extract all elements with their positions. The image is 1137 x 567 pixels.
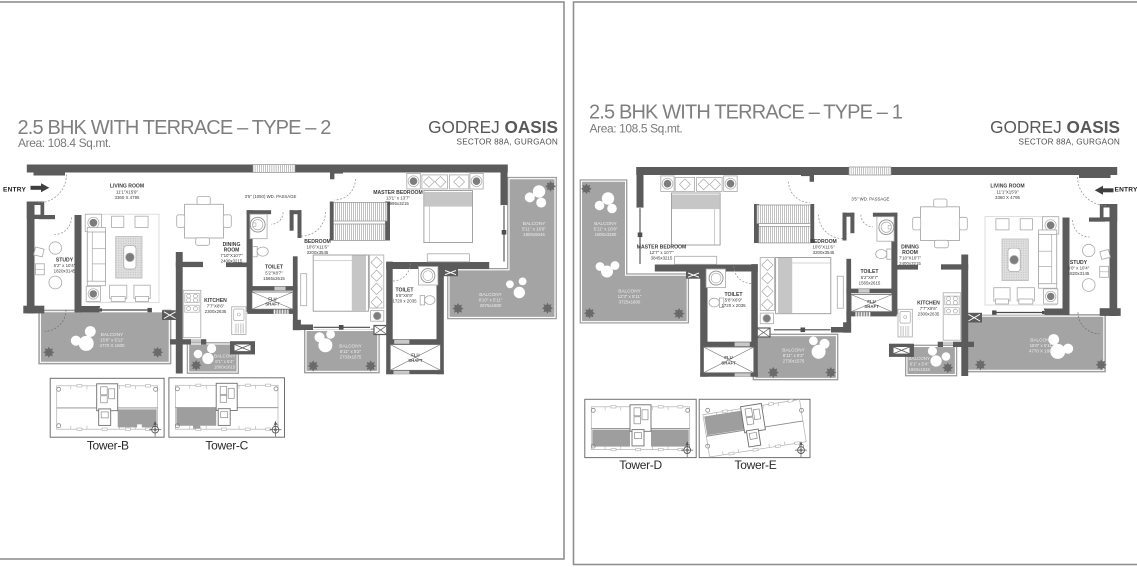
svg-text:3360 X 4795: 3360 X 4795 <box>115 195 140 200</box>
svg-text:10'6"X11'6": 10'6"X11'6" <box>306 245 328 250</box>
svg-text:1720 x 2035: 1720 x 2035 <box>392 299 417 304</box>
svg-text:11'1"X15'9": 11'1"X15'9" <box>996 190 1018 195</box>
svg-text:3'5" WD. PASSAGE: 3'5" WD. PASSAGE <box>851 196 889 201</box>
svg-text:SECTOR 88A, GURGAON: SECTOR 88A, GURGAON <box>1019 137 1120 146</box>
svg-text:SHAFT: SHAFT <box>408 358 423 363</box>
svg-text:7'10"X10'7": 7'10"X10'7" <box>899 256 922 261</box>
svg-text:Tower-D: Tower-D <box>619 458 662 472</box>
svg-text:3845x3215: 3845x3215 <box>651 256 673 261</box>
svg-text:15'8" x 5'11": 15'8" x 5'11" <box>100 338 124 343</box>
svg-text:1820x3145: 1820x3145 <box>54 269 76 274</box>
svg-text:SHAFT: SHAFT <box>721 360 736 365</box>
svg-text:Tower-C: Tower-C <box>205 439 248 453</box>
svg-text:3360 X 4795: 3360 X 4795 <box>995 195 1020 200</box>
svg-text:4770 X 1800: 4770 X 1800 <box>100 343 125 348</box>
svg-text:SECTOR 88A, GURGAON: SECTOR 88A, GURGAON <box>457 137 558 146</box>
svg-text:3'5" (1050) WD. PASSAGE: 3'5" (1050) WD. PASSAGE <box>245 194 297 199</box>
svg-text:12'7" x 10'7": 12'7" x 10'7" <box>649 250 674 255</box>
svg-text:12'3" x 5'11": 12'3" x 5'11" <box>618 294 642 299</box>
svg-text:BALCONY: BALCONY <box>618 288 641 293</box>
svg-text:1720 x 2035: 1720 x 2035 <box>721 303 746 308</box>
svg-text:Area: 108.5 Sq.mt.: Area: 108.5 Sq.mt. <box>590 122 683 136</box>
svg-text:FLU: FLU <box>724 355 732 360</box>
svg-text:BALCONY: BALCONY <box>101 332 124 337</box>
svg-text:ENTRY: ENTRY <box>3 186 27 193</box>
svg-text:BALCONY: BALCONY <box>594 221 617 226</box>
svg-text:1565x2615: 1565x2615 <box>859 280 881 285</box>
svg-text:GODREJ OASIS: GODREJ OASIS <box>428 117 558 137</box>
svg-text:8'11" x 5'2": 8'11" x 5'2" <box>783 353 805 358</box>
svg-text:6'1" x 5'4": 6'1" x 5'4" <box>910 362 929 367</box>
svg-text:BALCONY: BALCONY <box>479 292 502 297</box>
svg-text:GODREJ OASIS: GODREJ OASIS <box>990 117 1120 137</box>
svg-text:BALCONY: BALCONY <box>782 347 805 352</box>
svg-text:2733x1575: 2733x1575 <box>340 355 362 360</box>
svg-text:1820x3145: 1820x3145 <box>1068 271 1090 276</box>
svg-text:6'1" x 5'4": 6'1" x 5'4" <box>215 359 234 364</box>
svg-text:15'8" x 5'11": 15'8" x 5'11" <box>1030 343 1054 348</box>
svg-text:2400x3215: 2400x3215 <box>899 261 921 266</box>
svg-text:8'10" x 5'11": 8'10" x 5'11" <box>479 298 503 303</box>
svg-text:8'11" x 5'2": 8'11" x 5'2" <box>340 349 362 354</box>
svg-text:BALCONY: BALCONY <box>909 356 931 361</box>
svg-text:BALCONY: BALCONY <box>214 354 236 359</box>
svg-text:5'11" x 10'9": 5'11" x 10'9" <box>594 227 618 232</box>
svg-text:FLU: FLU <box>411 352 419 357</box>
svg-text:7'7"X8'6": 7'7"X8'6" <box>207 304 225 309</box>
svg-text:2675x1800: 2675x1800 <box>480 303 502 308</box>
svg-text:2730x1575: 2730x1575 <box>783 359 805 364</box>
svg-text:3725x1800: 3725x1800 <box>619 300 641 305</box>
svg-text:SHAFT: SHAFT <box>864 304 879 309</box>
svg-text:3200x3545: 3200x3545 <box>813 250 835 255</box>
svg-text:BALCONY: BALCONY <box>523 221 546 226</box>
svg-text:10'6"X11'6": 10'6"X11'6" <box>812 245 834 250</box>
svg-text:1565x2615: 1565x2615 <box>263 276 285 281</box>
svg-text:1860x1615: 1860x1615 <box>214 364 236 369</box>
svg-text:Tower-B: Tower-B <box>87 439 129 453</box>
svg-text:5'8"X6'9": 5'8"X6'9" <box>396 293 414 298</box>
svg-text:1800x3280: 1800x3280 <box>595 232 617 237</box>
svg-text:Area: 108.4 Sq.mt.: Area: 108.4 Sq.mt. <box>18 136 111 150</box>
svg-text:2300x2635: 2300x2635 <box>918 312 940 317</box>
svg-text:BALCONY: BALCONY <box>339 343 362 348</box>
svg-text:Tower-E: Tower-E <box>735 458 777 472</box>
svg-text:4770 X 1800: 4770 X 1800 <box>1029 349 1054 354</box>
svg-text:1860x1615: 1860x1615 <box>909 367 931 372</box>
svg-text:3200x3545: 3200x3545 <box>307 250 329 255</box>
svg-text:BALCONY: BALCONY <box>1030 337 1053 342</box>
svg-text:SHAFT: SHAFT <box>265 301 280 306</box>
svg-text:6'2" x 10'4": 6'2" x 10'4" <box>54 263 76 268</box>
svg-text:2300x2635: 2300x2635 <box>205 309 227 314</box>
svg-text:5'2"X8'7": 5'2"X8'7" <box>861 275 879 280</box>
svg-text:2400x3215: 2400x3215 <box>221 259 243 264</box>
svg-text:6'0" x 10'4": 6'0" x 10'4" <box>1068 266 1090 271</box>
svg-text:7'7"X8'6": 7'7"X8'6" <box>920 306 938 311</box>
svg-text:5'11" x 16'6": 5'11" x 16'6" <box>522 227 546 232</box>
svg-text:5'8"X6'9": 5'8"X6'9" <box>725 298 743 303</box>
svg-text:3995x3215: 3995x3215 <box>387 201 409 206</box>
svg-text:5'2"X8'7": 5'2"X8'7" <box>265 270 283 275</box>
svg-text:7'10"X10'7": 7'10"X10'7" <box>220 253 243 258</box>
svg-text:13'1" x 13'7": 13'1" x 13'7" <box>386 196 411 201</box>
svg-text:ENTRY: ENTRY <box>1115 186 1137 193</box>
svg-text:1800x5045: 1800x5045 <box>523 232 545 237</box>
svg-text:11'1"X15'9": 11'1"X15'9" <box>116 189 138 194</box>
svg-text:2.5 BHK WITH TERRACE – TYPE –: 2.5 BHK WITH TERRACE – TYPE – 1 <box>589 102 903 124</box>
